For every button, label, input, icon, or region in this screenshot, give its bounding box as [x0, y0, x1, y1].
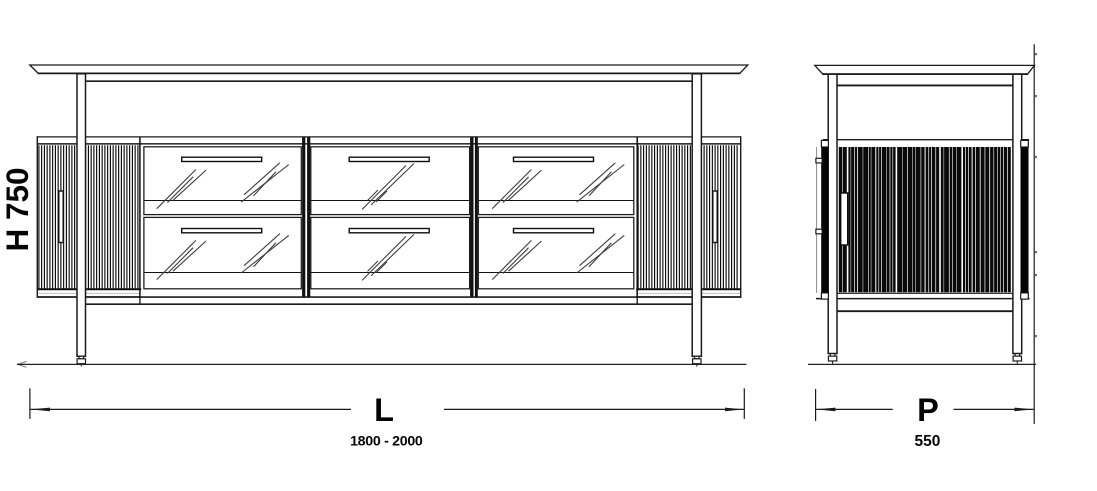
svg-text:L: L	[374, 392, 394, 428]
svg-text:1800 - 2000: 1800 - 2000	[350, 433, 423, 449]
svg-text:H 750: H 750	[0, 167, 35, 251]
svg-text:P: P	[917, 392, 939, 428]
svg-text:550: 550	[914, 433, 940, 450]
